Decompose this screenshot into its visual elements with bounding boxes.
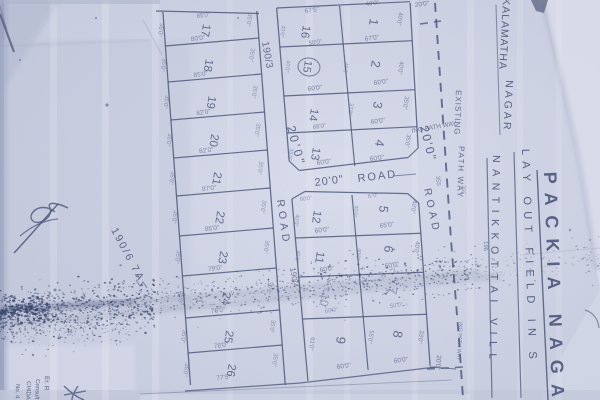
svg-text:20: 20 — [206, 133, 220, 148]
svg-text:CHIDAM: CHIDAM — [24, 381, 31, 400]
svg-text:355: 355 — [434, 176, 441, 187]
svg-text:196: 196 — [482, 241, 488, 252]
svg-text:355: 355 — [460, 185, 466, 194]
svg-text:NAGA: NAGA — [545, 313, 568, 400]
svg-text:11: 11 — [312, 251, 326, 265]
svg-text:23: 23 — [215, 250, 229, 265]
svg-text:22: 22 — [212, 210, 226, 225]
svg-text:12: 12 — [309, 210, 323, 225]
svg-text:Consult: Consult — [33, 379, 40, 400]
svg-text:14: 14 — [306, 108, 320, 123]
svg-text:15: 15 — [300, 60, 314, 74]
svg-text:Er. R: Er. R — [42, 376, 50, 391]
svg-text:21: 21 — [209, 171, 223, 186]
svg-text:No. 4: No. 4 — [13, 384, 20, 399]
svg-text:19: 19 — [204, 95, 218, 110]
svg-text:16: 16 — [298, 25, 312, 40]
svg-text:EXISTING: EXISTING — [452, 90, 463, 136]
